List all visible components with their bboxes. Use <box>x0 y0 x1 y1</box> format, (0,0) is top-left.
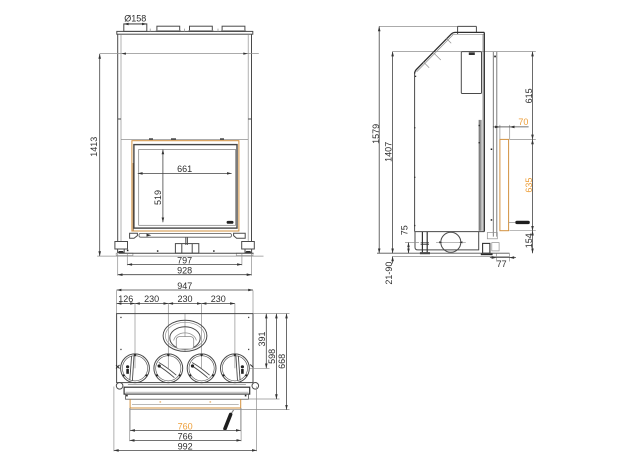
svg-text:615: 615 <box>524 88 534 103</box>
svg-text:760: 760 <box>178 421 193 431</box>
svg-text:391: 391 <box>257 331 267 346</box>
svg-text:126: 126 <box>118 294 133 304</box>
svg-text:1579: 1579 <box>371 124 381 144</box>
svg-text:230: 230 <box>144 294 159 304</box>
svg-text:75: 75 <box>399 225 409 235</box>
svg-text:1407: 1407 <box>383 142 393 162</box>
svg-text:230: 230 <box>211 294 226 304</box>
svg-text:797: 797 <box>177 256 192 266</box>
svg-text:519: 519 <box>153 190 163 205</box>
svg-text:21-90: 21-90 <box>384 262 394 285</box>
svg-text:661: 661 <box>177 164 192 174</box>
svg-text:928: 928 <box>177 266 192 276</box>
svg-text:947: 947 <box>177 281 192 291</box>
svg-text:635: 635 <box>524 178 534 193</box>
svg-text:230: 230 <box>177 294 192 304</box>
svg-text:Ø158: Ø158 <box>124 14 146 24</box>
svg-text:668: 668 <box>277 354 287 369</box>
svg-text:70: 70 <box>518 117 528 127</box>
svg-text:598: 598 <box>267 349 277 364</box>
svg-text:77: 77 <box>497 259 507 269</box>
svg-text:154: 154 <box>524 233 534 248</box>
svg-text:1413: 1413 <box>89 137 99 157</box>
svg-text:766: 766 <box>178 431 193 441</box>
svg-text:992: 992 <box>178 441 193 451</box>
